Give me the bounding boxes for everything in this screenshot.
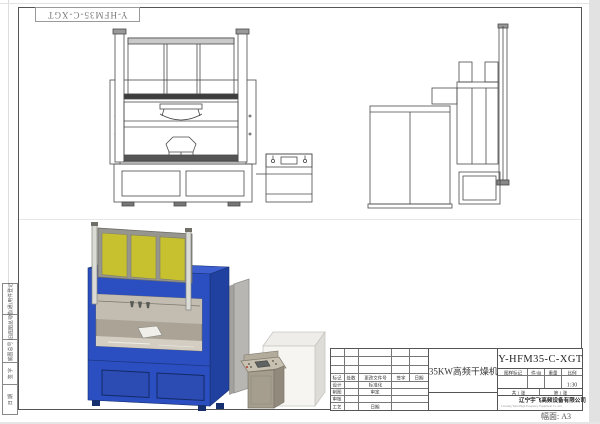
part-number: Y-HFM35-C-XGT — [498, 353, 583, 364]
revision-empty-row — [331, 349, 428, 357]
isometric-render — [58, 222, 326, 422]
sheets-row: 共 1 张 第 1 张 — [498, 389, 582, 396]
part-number-cell: Y-HFM35-C-XGT — [498, 349, 582, 369]
title-block: 标记 处数 更改文件号 签字 日期 设计 标准化 制图 审定 审核 — [330, 348, 583, 411]
sheet-size-note: 幅面: A3 — [541, 411, 571, 422]
paper-edge-right — [589, 0, 600, 424]
engineering-drawing-sheet: Y-HFM35-C-XGT 借(通)用件登记 旧底图总号 底图总号 签 字 日 … — [0, 0, 600, 424]
signature-row: 设计 标准化 — [331, 382, 428, 389]
left-margin-fields: 借(通)用件登记 旧底图总号 底图总号 签 字 日 期 — [2, 283, 18, 415]
margin-field-old-base-no: 旧底图总号 — [2, 315, 18, 340]
spec-header-row: 图样标记 件/台 重量 比例 — [498, 369, 582, 376]
spec-value-row: 1:30 — [498, 376, 582, 389]
revision-table: 标记 处数 更改文件号 签字 日期 设计 标准化 制图 审定 审核 — [331, 349, 429, 410]
sheet-number: 第 1 张 — [554, 389, 568, 396]
revision-empty-row — [331, 366, 428, 374]
margin-field-signature: 签 字 — [2, 363, 18, 385]
corner-part-number: Y-HFM35-C-XGT — [47, 10, 128, 20]
revision-header-row: 标记 处数 更改文件号 签字 日期 — [331, 374, 428, 382]
part-name-section: 35KW高频干燥机 — [429, 349, 498, 410]
side-view-drawing — [362, 22, 510, 210]
paper-edge-top — [0, 3, 600, 4]
margin-field-base-no: 底图总号 — [2, 340, 18, 363]
paper-edge-left — [8, 0, 9, 283]
corner-part-number-box: Y-HFM35-C-XGT — [35, 7, 140, 22]
company-name-en: Liaoning Yufei High Frequency Equipment … — [501, 405, 562, 408]
company-cell: 辽宁宇飞高频设备有限公司 Liaoning Yufei High Frequen… — [498, 396, 582, 410]
sheets-total: 共 1 张 — [512, 389, 526, 396]
scale-value: 1:30 — [567, 382, 577, 389]
signature-row: 工艺 日期 — [331, 403, 428, 410]
spec-section: Y-HFM35-C-XGT 图样标记 件/台 重量 比例 1:30 共 1 张 … — [498, 349, 582, 410]
signature-row: 审核 — [331, 396, 428, 403]
margin-field-borrow-record: 借(通)用件登记 — [2, 283, 18, 315]
signature-row: 制图 审定 — [331, 389, 428, 396]
front-view-drawing — [98, 24, 316, 210]
part-name-cell: 35KW高频干燥机 — [429, 349, 497, 393]
part-name: 35KW高频干燥机 — [429, 364, 498, 378]
company-name: 辽宁宇飞高频设备有限公司 — [519, 398, 586, 404]
fold-line — [19, 219, 581, 220]
revision-empty-row — [331, 357, 428, 365]
margin-field-date: 日 期 — [2, 385, 18, 415]
